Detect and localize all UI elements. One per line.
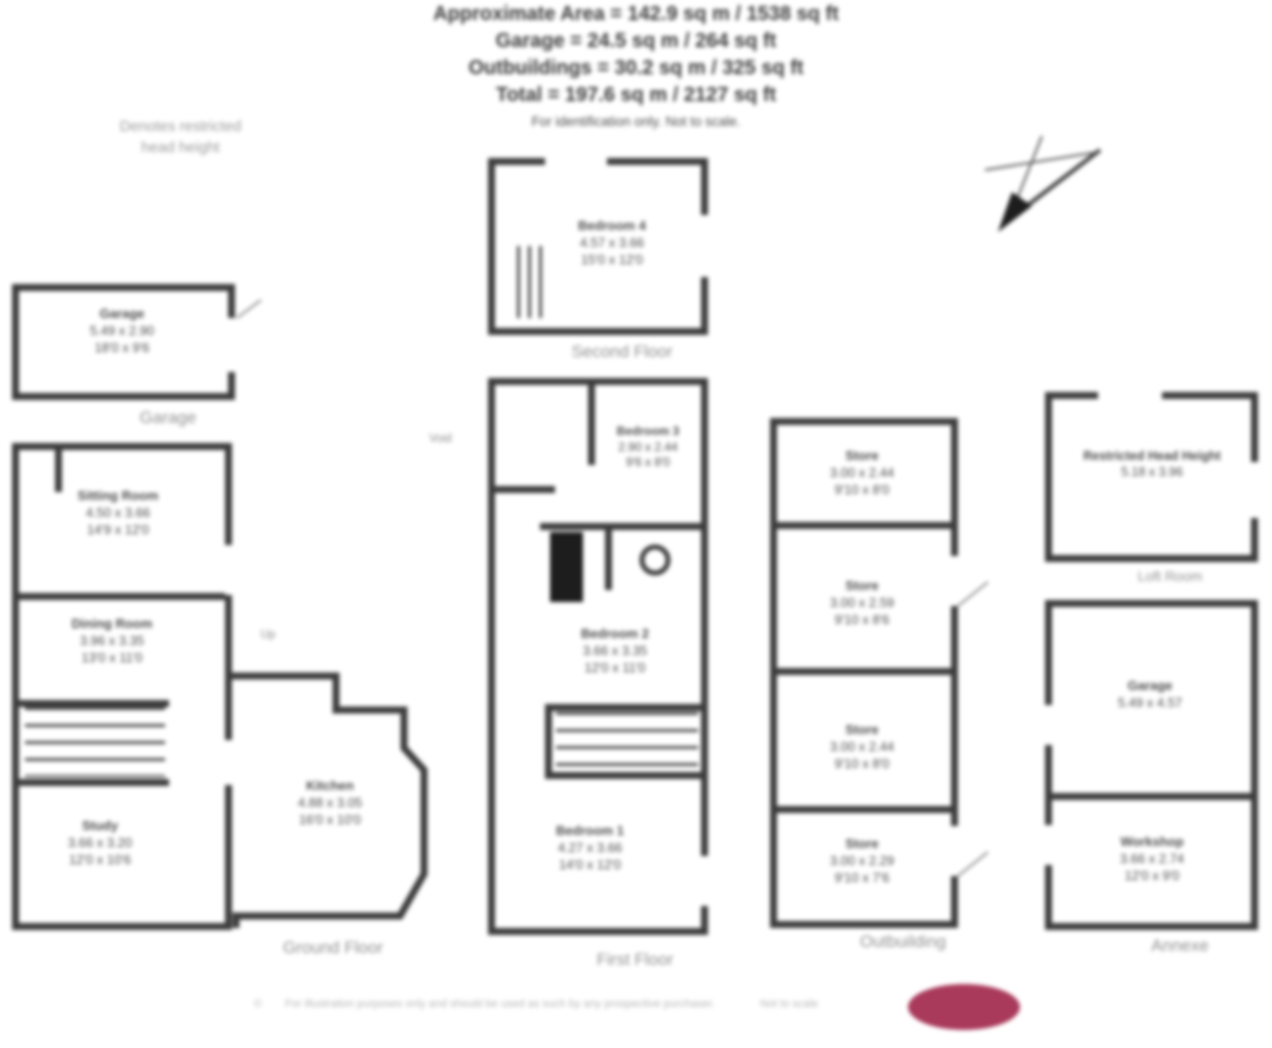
- interior-wall: [540, 523, 702, 530]
- title-line-4: Total = 197.6 sq m / 2127 sq ft: [0, 83, 1272, 108]
- caption-loft: Loft Room: [1090, 568, 1250, 584]
- room-label-dining-room: Dining Room 3.96 x 3.35 13'0 x 11'0: [37, 616, 187, 667]
- agency-logo: [908, 984, 1020, 1030]
- room-label-store-3: Store 3.00 x 2.44 9'10 x 8'0: [787, 722, 937, 773]
- caption-second-floor: Second Floor: [542, 342, 702, 362]
- door-opening: [1251, 462, 1260, 518]
- legend-line-2: head height: [88, 137, 273, 158]
- caption-outbuilding: Outbuilding: [823, 932, 983, 952]
- north-arrow-icon: [985, 136, 1100, 232]
- interior-wall: [545, 772, 701, 779]
- room-label-study: Study 3.66 x 3.20 12'0 x 10'6: [25, 818, 175, 869]
- title-line-3: Outbuildings = 30.2 sq m / 325 sq ft: [0, 56, 1272, 81]
- room-label-bedroom-4: Bedroom 4 4.57 x 3.66 15'0 x 12'0: [537, 218, 687, 269]
- door-opening: [225, 740, 234, 785]
- room-label-loft: Restricted Head Height 5.18 x 3.96: [1058, 448, 1246, 481]
- door-opening: [701, 856, 710, 906]
- interior-wall: [495, 486, 555, 493]
- caption-first-floor: First Floor: [555, 950, 715, 970]
- door-opening: [545, 157, 607, 166]
- room-label-kitchen: Kitchen 4.88 x 3.05 16'0 x 10'0: [255, 778, 405, 829]
- interior-wall: [605, 530, 612, 590]
- door-leaf-icon: [958, 852, 988, 876]
- door-leaf-icon: [237, 300, 261, 318]
- legend-line-1: Denotes restricted: [88, 116, 273, 137]
- interior-wall: [777, 806, 951, 813]
- room-label-store-4: Store 3.00 x 2.29 9'10 x 7'6: [787, 836, 937, 887]
- interior-wall: [1052, 793, 1251, 800]
- interior-wall: [19, 700, 169, 707]
- caption-garage: Garage: [88, 408, 248, 428]
- interior-wall: [545, 704, 701, 711]
- scale-note: Not to scale: [760, 998, 818, 1010]
- void-label: Void: [413, 432, 468, 447]
- door-opening: [951, 556, 960, 606]
- copyright-mark: ©: [254, 998, 262, 1010]
- stairs: [556, 712, 698, 770]
- room-label-store-1: Store 3.00 x 2.44 9'10 x 8'0: [787, 448, 937, 499]
- room-label-store-2: Store 3.00 x 2.59 9'10 x 8'6: [787, 578, 937, 629]
- interior-wall: [19, 593, 225, 600]
- room-label-sitting-room: Sitting Room 4.50 x 3.66 14'9 x 12'0: [43, 488, 193, 539]
- door-marker: [550, 532, 583, 602]
- stairs: [25, 707, 165, 777]
- room-label-bedroom-2: Bedroom 2 3.66 x 3.35 12'0 x 11'0: [540, 626, 690, 677]
- title-line-2: Garage = 24.5 sq m / 264 sq ft: [0, 29, 1272, 54]
- room-label-bedroom-3: Bedroom 3 2.90 x 2.44 9'6 x 8'0: [590, 424, 706, 471]
- floorplan-page: Approximate Area = 142.9 sq m / 1538 sq …: [0, 0, 1272, 1048]
- caption-annexe: Annexe: [1100, 936, 1260, 956]
- title-line-1: Approximate Area = 142.9 sq m / 1538 sq …: [0, 2, 1272, 27]
- room-label-annexe-garage: Garage 5.49 x 4.57: [1075, 678, 1225, 712]
- interior-wall: [545, 704, 552, 779]
- room-label-garage: Garage 5.49 x 2.90 18'0 x 9'6: [47, 306, 197, 357]
- interior-wall: [19, 779, 169, 786]
- door-opening: [1044, 705, 1053, 745]
- door-opening: [228, 318, 237, 372]
- caption-ground-floor: Ground Floor: [253, 938, 413, 958]
- disclaimer-text: For illustration purposes only and shoul…: [285, 998, 755, 1010]
- door-opening: [701, 215, 710, 277]
- interior-wall: [777, 522, 951, 529]
- door-opening: [1044, 825, 1053, 865]
- title-block: Approximate Area = 142.9 sq m / 1538 sq …: [0, 0, 1272, 133]
- door-opening: [225, 545, 234, 595]
- restricted-height-legend: Denotes restricted head height: [88, 116, 273, 158]
- door-opening: [951, 826, 960, 876]
- interior-wall: [777, 668, 951, 675]
- door-leaf-icon: [958, 582, 988, 606]
- door-opening: [1098, 391, 1162, 400]
- up-label: Up: [238, 628, 298, 643]
- interior-wall: [55, 450, 62, 492]
- room-label-bedroom-1: Bedroom 1 4.27 x 3.66 14'0 x 12'0: [515, 823, 665, 874]
- room-label-workshop: Workshop 3.66 x 2.74 12'0 x 9'0: [1077, 834, 1227, 885]
